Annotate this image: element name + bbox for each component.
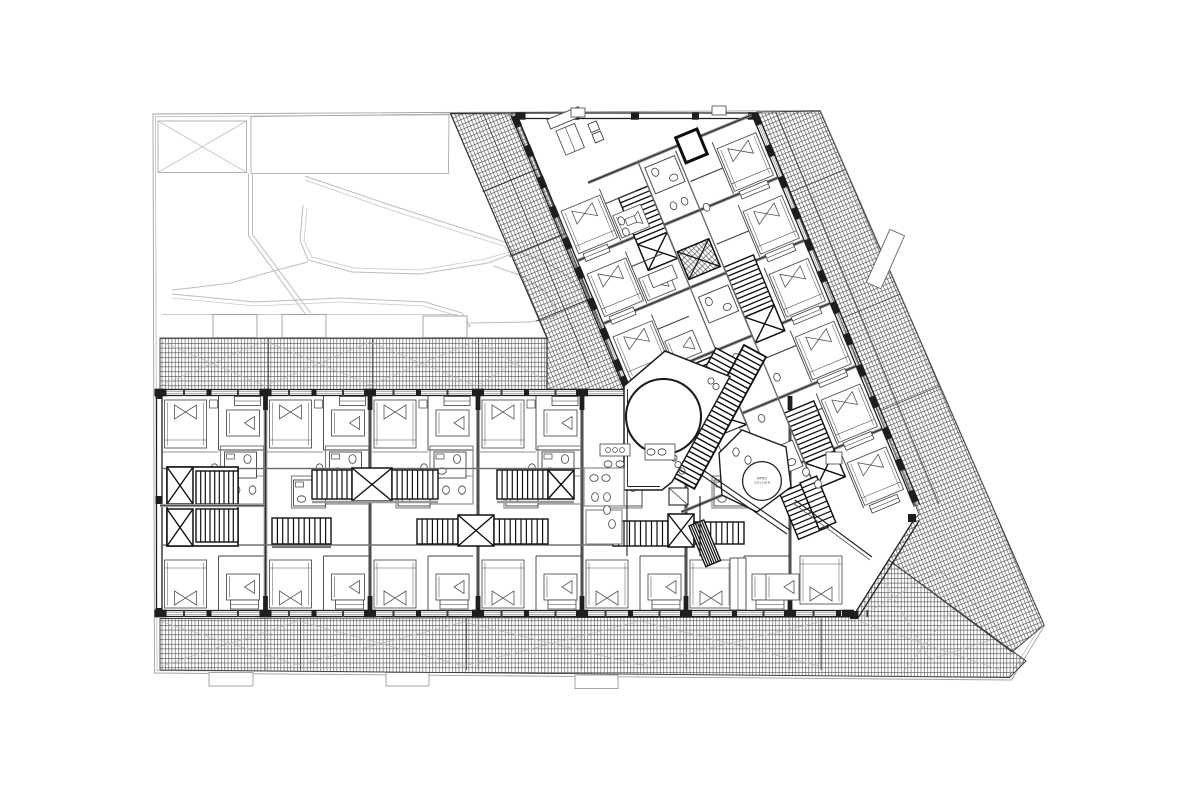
svg-text:PATIO: PATIO xyxy=(757,477,767,481)
svg-text:3.20 x 2.95 M: 3.20 x 2.95 M xyxy=(754,481,770,485)
